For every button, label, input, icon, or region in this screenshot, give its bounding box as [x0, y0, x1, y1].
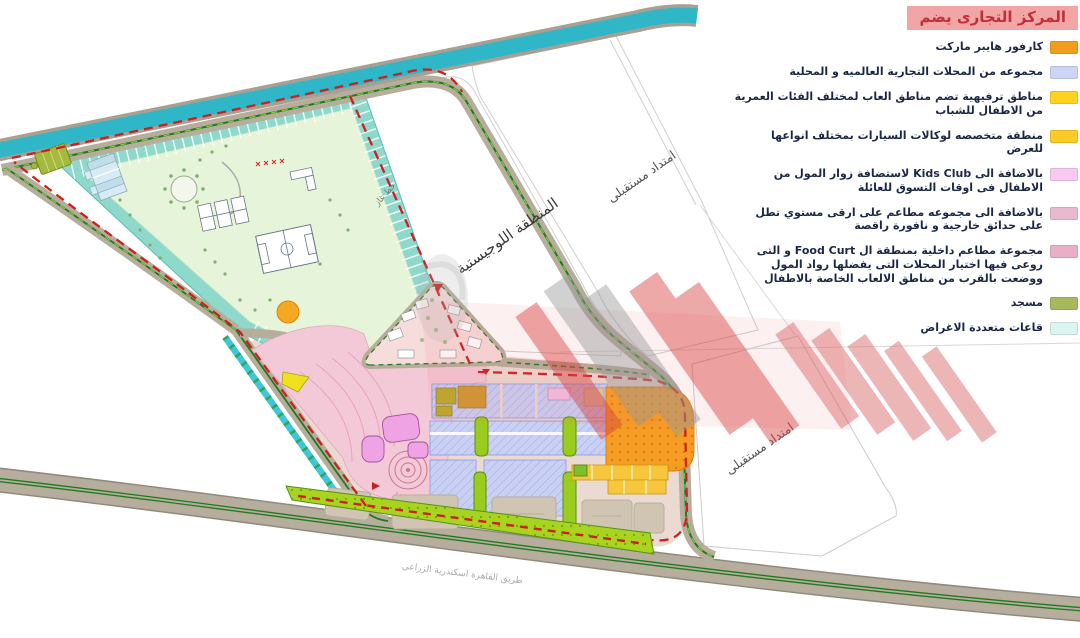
legend-item-halls: قاعات متعددة الاغراض [734, 321, 1078, 335]
legend-swatch-mosque [1050, 297, 1078, 310]
playground-circle [277, 301, 299, 323]
legend-swatch-restaurants [1050, 207, 1078, 220]
legend-item-label: قاعات متعددة الاغراض [734, 321, 1043, 335]
legend-item-entertainment: مناطق ترفيهية تضم مناطق العاب لمختلف الف… [734, 90, 1078, 118]
legend-item-restaurants: بالاضافة الى مجموعه مطاعم على ارقى مستوي… [734, 206, 1078, 234]
legend-item-carrefour: كارفور هايبر ماركت [734, 40, 1078, 54]
legend-item-shops: مجموعه من المحلات التجارية العالميه و ال… [734, 65, 1078, 79]
legend-title: المركز التجارى يضم [907, 6, 1078, 30]
legend-item-label: مجموعة مطاعم داخلية بمنطقة ال Food Curt … [734, 244, 1043, 285]
legend-item-label: مناطق ترفيهية تضم مناطق العاب لمختلف الف… [734, 90, 1043, 118]
legend-item-label: بالاضافة الى مجموعه مطاعم على ارقى مستوي… [734, 206, 1043, 234]
site-plan-page: المنطقة اللوجيستية امتداد مستقبلى امتداد… [0, 0, 1080, 638]
legend-item-mosque: مسجد [734, 296, 1078, 310]
legend-swatch-food-court [1050, 245, 1078, 258]
legend-item-label: مجموعه من المحلات التجارية العالميه و ال… [734, 65, 1043, 79]
legend-item-label: مسجد [734, 296, 1043, 310]
legend-swatch-halls [1050, 322, 1078, 335]
legend-item-kids-club: بالاضافة الى Kids Club لاستضافة زوار الم… [734, 167, 1078, 195]
legend-swatch-carrefour [1050, 41, 1078, 54]
legend-item-label: منطقة متخصصه لوكالات السيارات بمختلف انو… [734, 129, 1043, 157]
legend-swatch-entertainment [1050, 91, 1078, 104]
legend-swatch-kids-club [1050, 168, 1078, 181]
legend-panel: المركز التجارى يضم كارفور هايبر ماركت مج… [734, 6, 1078, 346]
legend-item-label: بالاضافة الى Kids Club لاستضافة زوار الم… [734, 167, 1043, 195]
legend-swatch-car-agencies [1050, 130, 1078, 143]
legend-item-label: كارفور هايبر ماركت [734, 40, 1043, 54]
legend-swatch-shops [1050, 66, 1078, 79]
legend-item-car-agencies: منطقة متخصصه لوكالات السيارات بمختلف انو… [734, 129, 1078, 157]
legend-item-food-court: مجموعة مطاعم داخلية بمنطقة ال Food Curt … [734, 244, 1078, 285]
